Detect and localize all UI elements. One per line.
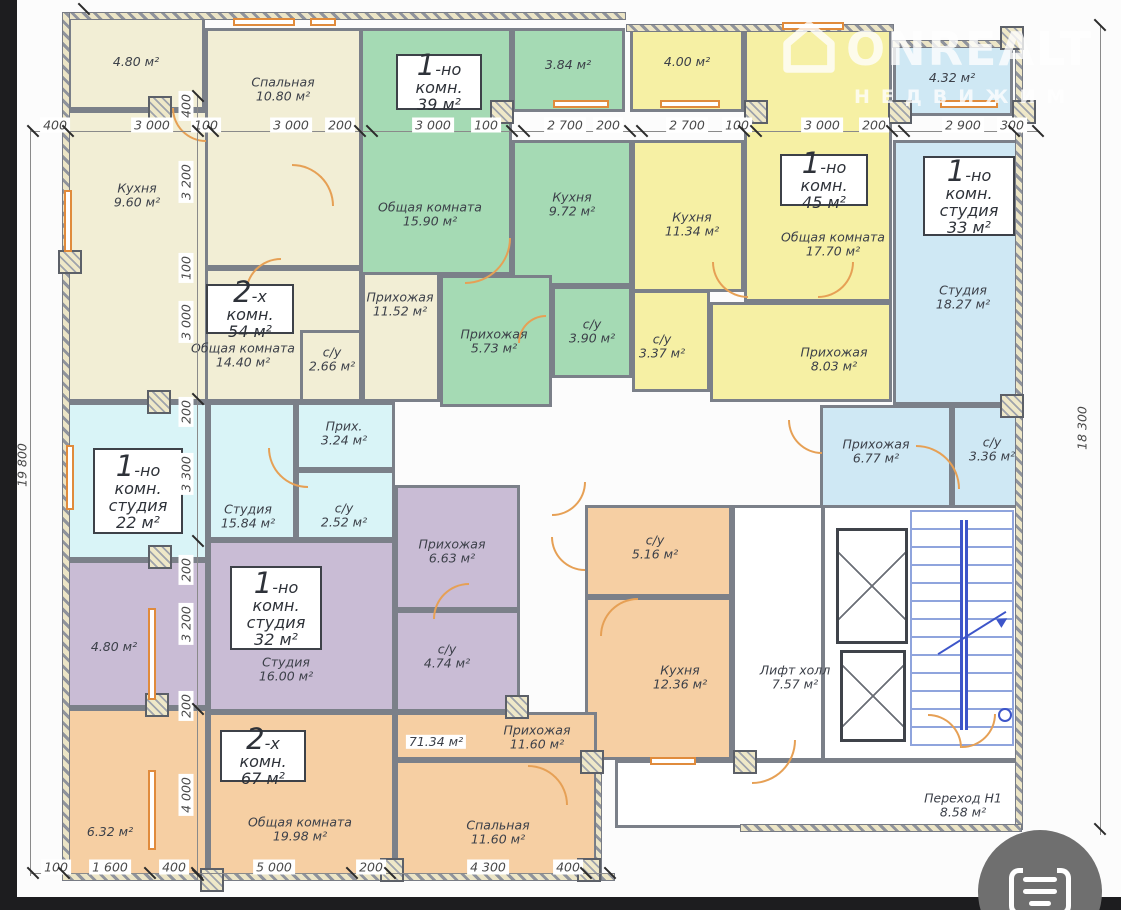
label-cyan-hall: Прих.3.24 м² bbox=[321, 420, 367, 449]
page-edge-bottom bbox=[0, 897, 1121, 910]
dim-label: 200 bbox=[179, 555, 194, 585]
dim-label: 5 000 bbox=[253, 860, 295, 875]
dim-label: 2 700 bbox=[666, 118, 708, 133]
stair-stringer bbox=[960, 520, 968, 730]
stair-direction-line bbox=[938, 611, 1007, 655]
page-edge-left bbox=[0, 0, 17, 910]
label-cream-kitchen: Кухня9.60 м² bbox=[114, 182, 160, 211]
unit-box-22: 1-но комн. студия 22 м² bbox=[93, 448, 183, 534]
label-orange-hall: Прихожая11.60 м² bbox=[504, 724, 571, 753]
window bbox=[940, 100, 998, 108]
column bbox=[580, 750, 604, 774]
label-purple-wc: с/у4.74 м² bbox=[424, 643, 470, 672]
unit-box-45: 1-но комн. 45 м² bbox=[780, 154, 868, 206]
label-blue-balcony: 4.32 м² bbox=[929, 71, 975, 85]
label-cream-hall: Прихожая11.52 м² bbox=[367, 291, 434, 320]
label-green-living: Общая комната15.90 м² bbox=[378, 201, 482, 230]
label-perehod: Переход Н18.58 м² bbox=[924, 792, 1002, 821]
label-yellow-living: Общая комната17.70 м² bbox=[781, 231, 885, 260]
scan-frame-icon bbox=[1009, 868, 1071, 910]
dim-label: 3 000 bbox=[179, 301, 194, 343]
window bbox=[148, 608, 156, 700]
outer-wall-right bbox=[1015, 40, 1023, 830]
window bbox=[660, 100, 720, 108]
dim-label: 100 bbox=[179, 253, 194, 283]
window bbox=[64, 190, 72, 252]
dim-label: 1 600 bbox=[89, 860, 131, 875]
window bbox=[782, 22, 844, 30]
dim-label: 4 300 bbox=[467, 860, 509, 875]
dim-label: 3 000 bbox=[270, 118, 312, 133]
floor-plan-canvas: 2-х комн. 54 м² 1-но комн. 39 м² 1-но ко… bbox=[0, 0, 1121, 910]
dim-label: 3 000 bbox=[412, 118, 454, 133]
unit-box-54: 2-х комн. 54 м² bbox=[206, 284, 294, 334]
dim-label: 4 000 bbox=[179, 774, 194, 816]
staircase bbox=[910, 510, 1014, 746]
dim-label: 3 000 bbox=[131, 118, 173, 133]
label-blue-studio: Студия18.27 м² bbox=[936, 284, 990, 313]
elevator-shaft-1 bbox=[836, 528, 908, 644]
column bbox=[58, 250, 82, 274]
label-cream-living: Общая комната14.40 м² bbox=[191, 342, 295, 371]
label-cyan-wc: с/у2.52 м² bbox=[321, 502, 367, 531]
label-lift-hall: Лифт холл7.57 м² bbox=[760, 664, 831, 693]
label-cream-wc: с/у2.66 м² bbox=[309, 346, 355, 375]
dim-label: 200 bbox=[179, 397, 194, 427]
label-yellow-balcony: 4.00 м² bbox=[664, 55, 710, 69]
unit-box-32: 1-но комн. студия 32 м² bbox=[230, 566, 322, 650]
dim-label: 100 bbox=[471, 118, 501, 133]
window bbox=[650, 757, 696, 765]
label-cyan-studio: Студия15.84 м² bbox=[221, 503, 275, 532]
label-green-balcony: 3.84 м² bbox=[545, 58, 591, 72]
dim-label: 3 200 bbox=[179, 161, 194, 203]
dim-line-left bbox=[30, 128, 31, 876]
dim-label: 2 700 bbox=[544, 118, 586, 133]
label-yellow-kitchen: Кухня11.34 м² bbox=[665, 211, 719, 240]
label-purple-balcony: 4.80 м² bbox=[91, 640, 137, 654]
door-arc bbox=[551, 537, 585, 571]
stair-start-circle bbox=[998, 708, 1012, 722]
label-purple-hall: Прихожая6.63 м² bbox=[419, 538, 486, 567]
room-cream-bedroom bbox=[205, 28, 362, 268]
dim-label: 200 bbox=[859, 118, 889, 133]
dim-label: 2 900 bbox=[942, 118, 984, 133]
label-cream-balcony: 4.80 м² bbox=[113, 55, 159, 69]
outer-wall-bottom bbox=[62, 873, 615, 881]
dim-label: 400 bbox=[553, 860, 583, 875]
column bbox=[505, 695, 529, 719]
label-cream-bedroom: Спальная10.80 м² bbox=[251, 76, 314, 105]
dim-label: 100 bbox=[41, 860, 71, 875]
dim-label: 3 200 bbox=[179, 603, 194, 645]
dim-label: 3 000 bbox=[801, 118, 843, 133]
label-green-hall: Прихожая5.73 м² bbox=[461, 328, 528, 357]
dim-line-right bbox=[1100, 25, 1101, 835]
label-purple-studio: Студия16.00 м² bbox=[259, 656, 313, 685]
dim-label: 200 bbox=[593, 118, 623, 133]
dim-label: 200 bbox=[179, 691, 194, 721]
label-orange-balcony: 6.32 м² bbox=[87, 825, 133, 839]
outer-wall-top-mid bbox=[626, 24, 894, 32]
dim-label: 3 300 bbox=[179, 453, 194, 495]
column bbox=[148, 545, 172, 569]
dim-label: 400 bbox=[159, 860, 189, 875]
label-orange-wc: с/у5.16 м² bbox=[632, 534, 678, 563]
label-blue-hall: Прихожая6.77 м² bbox=[843, 438, 910, 467]
dim-label: 200 bbox=[356, 860, 386, 875]
room-lift-hall bbox=[732, 505, 824, 761]
label-orange-bedroom: Спальная11.60 м² bbox=[466, 819, 529, 848]
elevator-shaft-2 bbox=[840, 650, 906, 742]
column bbox=[1000, 26, 1024, 50]
unit-box-67: 2-х комн. 67 м² bbox=[220, 730, 306, 782]
column bbox=[147, 390, 171, 414]
door-arc bbox=[788, 420, 822, 454]
scan-button[interactable] bbox=[978, 830, 1102, 910]
label-blue-wc: с/у3.36 м² bbox=[969, 436, 1015, 465]
window bbox=[553, 100, 609, 108]
dim-label: 200 bbox=[325, 118, 355, 133]
dim-line-vchain bbox=[197, 96, 198, 880]
window bbox=[66, 445, 74, 510]
window bbox=[148, 770, 156, 850]
column bbox=[888, 100, 912, 124]
label-orange-kitchen: Кухня12.36 м² bbox=[653, 664, 707, 693]
window bbox=[233, 18, 295, 26]
outer-wall-perehod bbox=[740, 824, 1022, 832]
unit-box-39: 1-но комн. 39 м² bbox=[396, 54, 482, 110]
window bbox=[310, 18, 336, 26]
label-yellow-hall: Прихожая8.03 м² bbox=[801, 346, 868, 375]
door-arc bbox=[552, 482, 586, 516]
room-cream-hall bbox=[362, 268, 440, 402]
label-green-kitchen: Кухня9.72 м² bbox=[549, 191, 595, 220]
unit-box-33: 1-но комн. студия 33 м² bbox=[923, 156, 1015, 236]
label-orange-living: Общая комната19.98 м² bbox=[248, 816, 352, 845]
label-yellow-wc: с/у3.37 м² bbox=[639, 333, 685, 362]
label-green-wc: с/у3.90 м² bbox=[569, 318, 615, 347]
dim-label-total-right: 18 300 bbox=[1075, 403, 1090, 453]
column bbox=[148, 96, 172, 120]
label-orange-note: 71.34 м² bbox=[406, 735, 466, 749]
outer-wall-top-left bbox=[68, 12, 626, 20]
column bbox=[1000, 394, 1024, 418]
door-arc bbox=[712, 262, 748, 298]
dim-label: 400 bbox=[179, 91, 194, 121]
